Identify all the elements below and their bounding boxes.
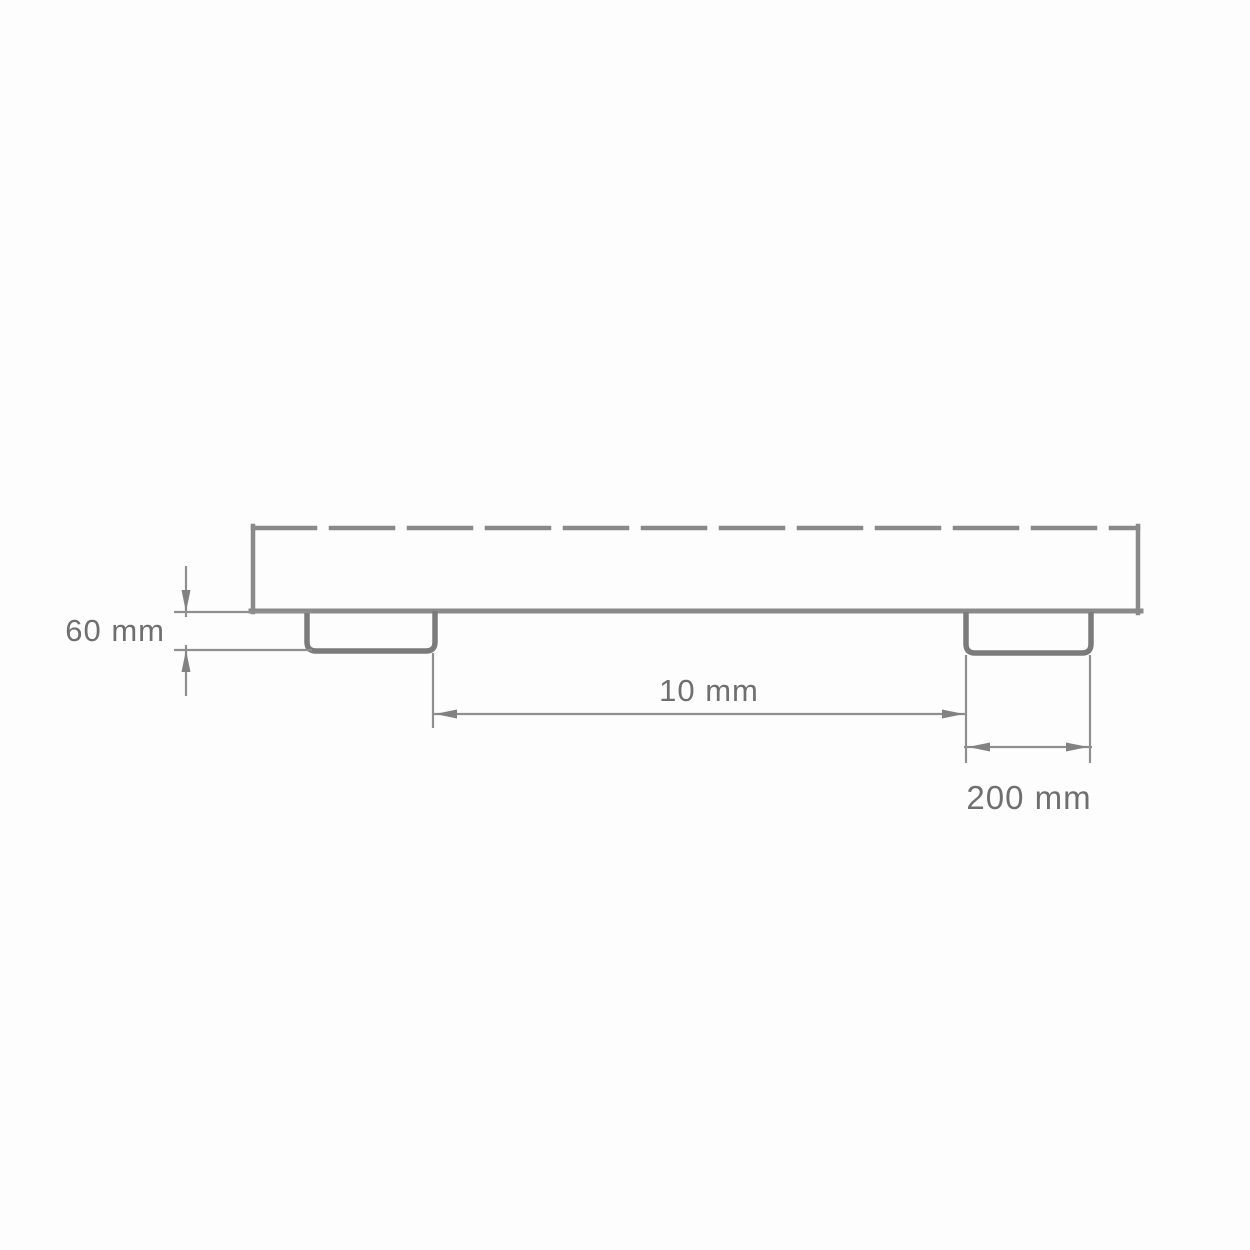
dim-foot-width-label: 200 mm bbox=[966, 779, 1091, 816]
arrowhead-right-icon bbox=[1066, 743, 1088, 752]
arrowhead-right-icon bbox=[942, 710, 964, 719]
dim-foot-width bbox=[964, 655, 1092, 763]
arrowhead-left-icon bbox=[968, 743, 990, 752]
dim-height-label: 60 mm bbox=[65, 613, 165, 648]
dim-height bbox=[174, 566, 312, 696]
arrowhead-left-icon bbox=[435, 710, 457, 719]
arrowhead-down-icon bbox=[182, 590, 191, 612]
left-foot-outline bbox=[307, 611, 435, 651]
technical-drawing: 60 mm 10 mm 200 mm bbox=[0, 0, 1250, 1250]
arrowhead-up-icon bbox=[182, 650, 191, 672]
dim-gap-label: 10 mm bbox=[659, 673, 759, 708]
left-foot bbox=[307, 611, 435, 651]
panel-body bbox=[251, 526, 1141, 613]
right-foot-outline bbox=[966, 612, 1091, 653]
right-foot bbox=[966, 612, 1091, 653]
drawing-canvas: 60 mm 10 mm 200 mm bbox=[0, 0, 1250, 1250]
